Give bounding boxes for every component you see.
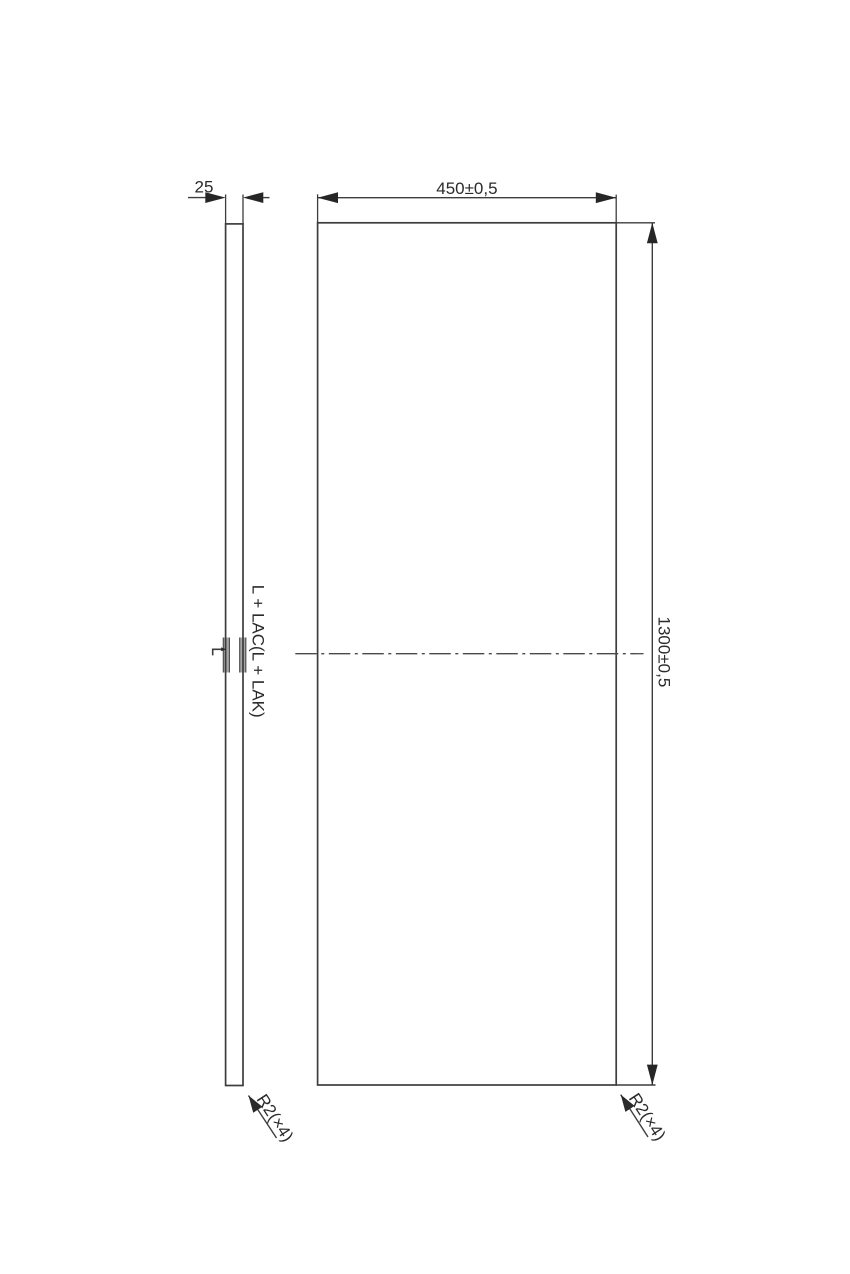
- svg-text:25: 25: [195, 178, 214, 197]
- svg-text:450±0,5: 450±0,5: [436, 179, 497, 198]
- svg-text:L + LAC(L + LAK): L + LAC(L + LAK): [249, 585, 268, 718]
- svg-text:1300±0,5: 1300±0,5: [654, 617, 673, 688]
